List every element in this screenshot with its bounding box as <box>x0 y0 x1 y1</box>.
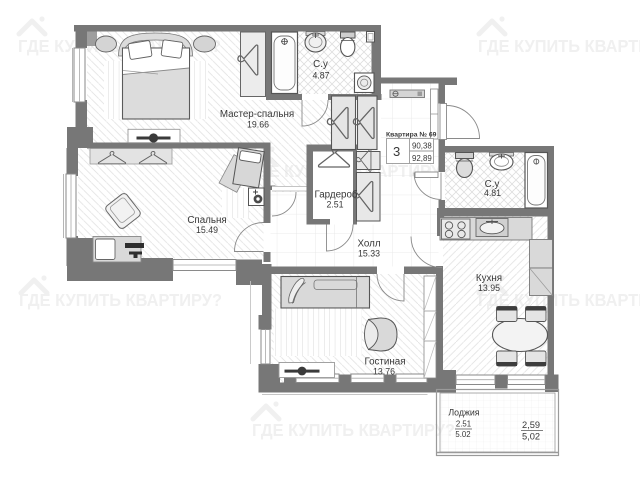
svg-text:Лоджия: Лоджия <box>448 408 479 418</box>
svg-text:2,59: 2,59 <box>522 420 540 430</box>
svg-text:3: 3 <box>393 144 400 159</box>
svg-text:Квартира № 69: Квартира № 69 <box>386 132 437 139</box>
svg-text:13.76: 13.76 <box>373 367 395 377</box>
svg-text:ГДЕ КУПИТЬ КВАРТИРУ?: ГДЕ КУПИТЬ КВАРТИРУ? <box>478 36 640 56</box>
svg-text:13.95: 13.95 <box>478 283 500 293</box>
svg-text:ГДЕ КУПИТЬ КВАРТИРУ?: ГДЕ КУПИТЬ КВАРТИРУ? <box>252 420 455 440</box>
svg-text:90,38: 90,38 <box>412 142 432 151</box>
svg-text:4.87: 4.87 <box>312 71 329 81</box>
svg-text:2.51: 2.51 <box>456 420 471 429</box>
svg-text:92,89: 92,89 <box>412 154 432 163</box>
svg-text:19.66: 19.66 <box>247 120 269 130</box>
svg-text:4.81: 4.81 <box>484 188 501 198</box>
svg-text:15.49: 15.49 <box>196 225 218 235</box>
svg-text:С.у: С.у <box>313 59 328 70</box>
svg-text:ГДЕ КУПИТЬ КВАРТИРУ?: ГДЕ КУПИТЬ КВАРТИРУ? <box>19 290 222 310</box>
svg-text:15.33: 15.33 <box>358 249 380 259</box>
svg-text:5,02: 5,02 <box>522 432 540 442</box>
svg-text:Мастер-спальня: Мастер-спальня <box>220 109 294 120</box>
svg-text:2.51: 2.51 <box>326 200 343 210</box>
svg-text:5.02: 5.02 <box>455 430 470 439</box>
